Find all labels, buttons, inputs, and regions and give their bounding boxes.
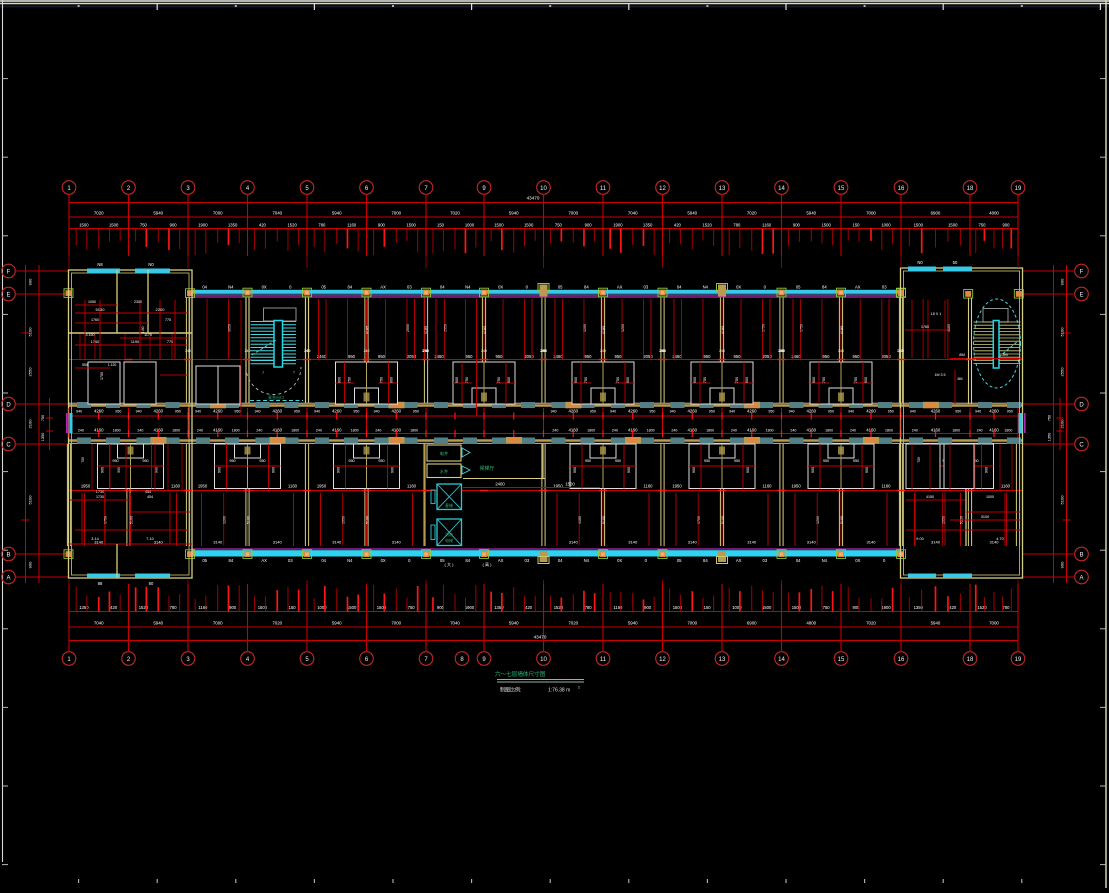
svg-text:5100: 5100	[721, 516, 725, 524]
svg-text:3140: 3140	[273, 540, 283, 545]
svg-text:2550: 2550	[28, 367, 33, 377]
svg-text:750: 750	[497, 377, 501, 383]
svg-text:940: 940	[910, 410, 916, 414]
svg-text:1800: 1800	[766, 429, 774, 433]
svg-text:750: 750	[854, 377, 858, 383]
svg-text:3050: 3050	[227, 324, 231, 332]
svg-text:940: 940	[551, 410, 557, 414]
svg-text:1.120: 1.120	[108, 363, 117, 367]
svg-text:15: 15	[838, 186, 845, 192]
svg-text:900: 900	[1003, 222, 1011, 227]
svg-text:900: 900	[390, 377, 394, 383]
svg-text:1800: 1800	[172, 429, 180, 433]
svg-text:3.150: 3.150	[86, 333, 95, 337]
svg-text:1500: 1500	[524, 222, 534, 227]
svg-text:1200: 1200	[223, 516, 227, 524]
svg-text:5100: 5100	[1060, 327, 1065, 337]
svg-text:900: 900	[985, 467, 989, 473]
svg-text:AX: AX	[261, 558, 267, 563]
svg-text:780: 780	[170, 605, 178, 610]
svg-text:940: 940	[670, 410, 676, 414]
svg-text:7020: 7020	[568, 621, 578, 626]
svg-text:240: 240	[245, 349, 251, 353]
svg-text:7040: 7040	[450, 621, 460, 626]
svg-text:5100: 5100	[28, 327, 33, 337]
svg-text:900: 900	[28, 278, 33, 285]
svg-text:D: D	[1079, 402, 1084, 408]
svg-text:1160: 1160	[762, 484, 772, 489]
svg-text:3140: 3140	[931, 540, 941, 545]
svg-text:1800: 1800	[351, 429, 359, 433]
svg-text:240: 240	[912, 429, 918, 433]
svg-text:8M: 8M	[959, 352, 965, 357]
svg-text:1800: 1800	[952, 429, 960, 433]
svg-text:2550: 2550	[444, 324, 448, 332]
svg-text:电梯: 电梯	[445, 537, 453, 543]
svg-text:900: 900	[170, 222, 178, 227]
svg-text:900: 900	[812, 377, 816, 383]
svg-text:940: 940	[314, 410, 320, 414]
svg-text:950: 950	[294, 410, 300, 414]
svg-text:5940: 5940	[806, 210, 816, 215]
svg-text:950: 950	[175, 410, 181, 414]
svg-text:5100: 5100	[130, 516, 134, 524]
svg-text:950: 950	[378, 354, 386, 359]
svg-text:1750: 1750	[800, 324, 804, 332]
svg-text:7040: 7040	[628, 210, 638, 215]
svg-text:4185: 4185	[578, 516, 582, 524]
svg-text:5940: 5940	[332, 621, 342, 626]
svg-text:N4: N4	[465, 284, 471, 289]
svg-text:05: 05	[677, 558, 682, 563]
svg-text:2050: 2050	[643, 354, 653, 359]
svg-text:420: 420	[259, 222, 267, 227]
svg-text:1000: 1000	[465, 222, 475, 227]
svg-text:1800: 1800	[113, 429, 121, 433]
svg-text:11: 11	[600, 186, 607, 192]
svg-text:7020: 7020	[94, 210, 104, 215]
svg-text:750: 750	[584, 377, 588, 383]
svg-text:5100: 5100	[840, 516, 844, 524]
svg-text:1500: 1500	[565, 482, 575, 487]
svg-text:900: 900	[864, 377, 868, 383]
svg-text:18: 18	[967, 657, 974, 663]
svg-text:7020: 7020	[272, 621, 282, 626]
svg-text:1200: 1200	[583, 324, 587, 332]
svg-text:1730: 1730	[96, 495, 104, 499]
svg-text:2050: 2050	[881, 354, 891, 359]
svg-text:1160: 1160	[288, 484, 298, 489]
svg-text:1800: 1800	[232, 429, 240, 433]
svg-text:4150: 4150	[926, 495, 934, 499]
svg-text:900: 900	[793, 222, 801, 227]
svg-text:1160: 1160	[198, 605, 208, 610]
svg-text:950: 950	[585, 459, 591, 463]
svg-text:4185: 4185	[721, 326, 725, 334]
svg-text:05: 05	[321, 284, 326, 289]
svg-text:240: 240	[197, 429, 203, 433]
svg-text:84: 84	[822, 284, 827, 289]
svg-text:( 高 ): ( 高 )	[483, 561, 493, 567]
svg-text:940: 940	[610, 410, 616, 414]
svg-text:750: 750	[703, 377, 707, 383]
svg-text:950: 950	[768, 410, 774, 414]
svg-text:05: 05	[796, 284, 801, 289]
svg-text:12: 12	[659, 186, 666, 192]
svg-text:950: 950	[585, 354, 593, 359]
svg-text:1520: 1520	[702, 222, 712, 227]
svg-text:1350: 1350	[228, 222, 238, 227]
svg-text:950: 950	[853, 354, 861, 359]
svg-text:3.14: 3.14	[91, 537, 98, 541]
svg-text:7020: 7020	[747, 210, 757, 215]
svg-text:5100: 5100	[247, 516, 251, 524]
svg-text:1900: 1900	[198, 222, 208, 227]
svg-text:240: 240	[552, 429, 558, 433]
svg-text:4185: 4185	[840, 326, 844, 334]
svg-text:950: 950	[734, 354, 742, 359]
svg-text:2550: 2550	[342, 516, 346, 524]
svg-text:( 大 ): ( 大 )	[445, 561, 455, 567]
svg-text:5130: 5130	[96, 307, 106, 312]
svg-text:04: 04	[202, 284, 207, 289]
svg-text:900: 900	[378, 222, 386, 227]
svg-text:1950: 1950	[81, 484, 91, 489]
svg-text:1520: 1520	[977, 605, 987, 610]
svg-text:780: 780	[585, 605, 593, 610]
svg-text:03: 03	[407, 284, 412, 289]
svg-text:AX: AX	[855, 284, 861, 289]
svg-text:2200: 2200	[156, 307, 166, 312]
svg-text:04: 04	[321, 558, 326, 563]
svg-text:3100: 3100	[981, 515, 989, 519]
svg-text:1950: 1950	[317, 484, 327, 489]
svg-text:900: 900	[574, 377, 578, 383]
svg-text:3140: 3140	[332, 540, 342, 545]
svg-text:04: 04	[440, 284, 445, 289]
svg-text:1160: 1160	[643, 484, 653, 489]
svg-text:750: 750	[979, 222, 987, 227]
svg-text:780: 780	[1003, 605, 1011, 610]
svg-text:AX: AX	[617, 284, 623, 289]
svg-text:950: 950	[704, 459, 710, 463]
svg-text:0X: 0X	[498, 284, 503, 289]
svg-text:1050: 1050	[88, 300, 96, 304]
svg-text:750: 750	[408, 605, 416, 610]
svg-text:43470: 43470	[527, 196, 540, 201]
svg-text:0X: 0X	[617, 558, 622, 563]
svg-text:候梯厅: 候梯厅	[479, 465, 494, 472]
svg-text:1350: 1350	[1048, 433, 1052, 441]
svg-text:240: 240	[671, 429, 677, 433]
svg-text:13: 13	[719, 657, 726, 663]
svg-text:900: 900	[272, 467, 276, 473]
svg-text:240: 240	[731, 429, 737, 433]
svg-text:240: 240	[375, 429, 381, 433]
svg-text:6900: 6900	[931, 210, 941, 215]
svg-text:3140: 3140	[747, 540, 757, 545]
svg-text:240: 240	[541, 349, 547, 353]
svg-text:1500: 1500	[948, 222, 958, 227]
svg-text:N4: N4	[584, 558, 590, 563]
svg-text:950: 950	[615, 354, 623, 359]
svg-text:JM: JM	[1002, 352, 1007, 357]
svg-text:950: 950	[496, 354, 504, 359]
svg-text:03: 03	[882, 284, 887, 289]
svg-text:J: J	[262, 370, 264, 375]
svg-text:7000: 7000	[391, 210, 401, 215]
svg-text:43470: 43470	[534, 635, 547, 640]
svg-text:750: 750	[735, 377, 739, 383]
svg-text:1500: 1500	[109, 222, 119, 227]
svg-text:3140: 3140	[688, 540, 698, 545]
svg-text:950: 950	[590, 410, 596, 414]
svg-text:1200: 1200	[621, 324, 625, 332]
svg-text:11: 11	[600, 657, 607, 663]
svg-text:750: 750	[81, 457, 85, 463]
svg-text:F: F	[7, 269, 11, 275]
svg-text:2550: 2550	[406, 324, 410, 332]
svg-text:3140: 3140	[867, 540, 877, 545]
svg-text:900: 900	[455, 377, 459, 383]
svg-text:4185: 4185	[483, 326, 487, 334]
svg-text:1:76.38 m: 1:76.38 m	[548, 688, 570, 694]
svg-text:B: B	[1079, 552, 1083, 558]
svg-text:4.70: 4.70	[996, 537, 1003, 541]
svg-text:1350: 1350	[41, 433, 45, 441]
svg-text:5100: 5100	[366, 516, 370, 524]
svg-text:7040: 7040	[94, 621, 104, 626]
svg-text:电井: 电井	[440, 450, 448, 457]
svg-text:7000: 7000	[213, 621, 223, 626]
svg-text:1160: 1160	[881, 484, 891, 489]
svg-text:AX: AX	[736, 558, 742, 563]
svg-text:750: 750	[465, 377, 469, 383]
svg-text:900: 900	[692, 467, 696, 473]
svg-text:900: 900	[811, 467, 815, 473]
svg-text:750: 750	[822, 377, 826, 383]
svg-text:1500: 1500	[914, 222, 924, 227]
svg-text:950: 950	[828, 410, 834, 414]
svg-text:240: 240	[612, 429, 618, 433]
svg-text:12: 12	[659, 657, 666, 663]
svg-text:240: 240	[719, 349, 725, 353]
svg-text:15: 15	[838, 657, 845, 663]
svg-text:900: 900	[644, 605, 652, 610]
svg-text:7000: 7000	[687, 621, 697, 626]
svg-text:900: 900	[626, 377, 630, 383]
svg-text:2400: 2400	[495, 482, 505, 487]
svg-text:240: 240	[256, 429, 262, 433]
svg-text:750: 750	[380, 377, 384, 383]
svg-text:950: 950	[115, 410, 121, 414]
svg-text:18: 18	[967, 186, 974, 192]
svg-text:制图比例:: 制图比例:	[500, 687, 521, 694]
svg-text:900: 900	[746, 467, 750, 473]
svg-text:4800: 4800	[989, 210, 999, 215]
svg-text:50: 50	[953, 260, 958, 265]
svg-text:03: 03	[644, 284, 649, 289]
svg-text:900: 900	[338, 377, 342, 383]
svg-text:240: 240	[481, 349, 487, 353]
svg-text:1900: 1900	[881, 605, 891, 610]
svg-text:4800: 4800	[806, 621, 816, 626]
svg-text:750: 750	[917, 457, 921, 463]
svg-text:N0: N0	[148, 262, 154, 267]
svg-text:84: 84	[703, 558, 708, 563]
svg-text:750: 750	[616, 377, 620, 383]
svg-text:04: 04	[677, 284, 682, 289]
svg-text:1175: 1175	[144, 333, 152, 337]
svg-text:1950: 1950	[198, 484, 208, 489]
svg-text:1750: 1750	[104, 516, 108, 524]
svg-text:4185: 4185	[366, 326, 370, 334]
svg-text:1800: 1800	[825, 429, 833, 433]
svg-text:84: 84	[465, 558, 470, 563]
svg-text:950: 950	[413, 410, 419, 414]
svg-text:900: 900	[101, 467, 105, 473]
svg-text:7000: 7000	[391, 621, 401, 626]
svg-text:A: A	[1079, 575, 1083, 581]
svg-text:16: 16	[898, 186, 905, 192]
svg-text:750: 750	[555, 222, 563, 227]
svg-text:1160: 1160	[613, 605, 623, 610]
svg-text:1500: 1500	[673, 605, 683, 610]
svg-text:1M 3 5: 1M 3 5	[935, 373, 946, 377]
svg-text:19: 19	[1015, 657, 1022, 663]
svg-text:N4: N4	[822, 558, 828, 563]
svg-text:4185: 4185	[602, 326, 606, 334]
svg-text:900: 900	[573, 467, 577, 473]
svg-text:1500: 1500	[494, 222, 504, 227]
svg-text:80: 80	[149, 581, 154, 586]
svg-text:900: 900	[585, 222, 593, 227]
svg-text:5940: 5940	[687, 210, 697, 215]
svg-text:1000: 1000	[881, 222, 891, 227]
svg-text:240: 240	[423, 349, 429, 353]
svg-text:消防: 消防	[445, 531, 453, 537]
svg-text:780: 780	[733, 222, 741, 227]
svg-text:9.00: 9.00	[916, 537, 923, 541]
svg-text:900: 900	[28, 561, 33, 568]
svg-text:0X: 0X	[855, 558, 860, 563]
svg-text:16: 16	[898, 657, 905, 663]
svg-text:10: 10	[540, 186, 547, 192]
svg-text:7000: 7000	[213, 210, 223, 215]
svg-text:900: 900	[218, 467, 222, 473]
svg-text:240: 240	[316, 429, 322, 433]
svg-text:10: 10	[540, 657, 547, 663]
svg-text:04: 04	[558, 558, 563, 563]
svg-text:940: 940	[374, 410, 380, 414]
svg-text:紧急出口: 紧急出口	[268, 394, 284, 400]
svg-text:N8: N8	[97, 262, 103, 267]
svg-text:7000: 7000	[989, 621, 999, 626]
svg-text:420: 420	[674, 222, 682, 227]
svg-text:900: 900	[865, 467, 869, 473]
svg-text:5940: 5940	[509, 210, 519, 215]
svg-text:900: 900	[337, 467, 341, 473]
svg-text:940: 940	[729, 410, 735, 414]
svg-text:775: 775	[165, 318, 171, 322]
svg-text:05: 05	[558, 284, 563, 289]
svg-text:3140: 3140	[807, 540, 817, 545]
svg-text:4185: 4185	[947, 324, 951, 332]
svg-text:2050: 2050	[524, 354, 534, 359]
svg-text:7000: 7000	[866, 210, 876, 215]
svg-text:1800: 1800	[587, 429, 595, 433]
svg-text:1800: 1800	[410, 429, 418, 433]
svg-text:N0: N0	[917, 260, 923, 265]
svg-text:454: 454	[147, 495, 153, 499]
svg-text:5940: 5940	[332, 210, 342, 215]
svg-text:1800: 1800	[706, 429, 714, 433]
svg-text:750: 750	[41, 415, 45, 421]
svg-text:5940: 5940	[153, 621, 163, 626]
svg-text:950: 950	[259, 459, 265, 463]
svg-text:1160: 1160	[1001, 484, 1011, 489]
svg-text:1500: 1500	[258, 605, 268, 610]
svg-text:950: 950	[353, 410, 359, 414]
svg-text:950: 950	[709, 410, 715, 414]
svg-text:AX: AX	[380, 284, 386, 289]
svg-text:1800: 1800	[885, 429, 893, 433]
svg-text:240: 240	[137, 429, 143, 433]
svg-text:780: 780	[318, 222, 326, 227]
svg-text:950: 950	[615, 459, 621, 463]
svg-text:3140: 3140	[569, 540, 579, 545]
svg-text:8M: 8M	[958, 377, 963, 381]
svg-text:7020: 7020	[866, 621, 876, 626]
svg-text:1350: 1350	[79, 605, 89, 610]
svg-text:1750: 1750	[100, 372, 104, 380]
svg-text:1500: 1500	[347, 605, 357, 610]
svg-text:240: 240	[660, 349, 666, 353]
svg-text:950: 950	[112, 459, 118, 463]
svg-text:150: 150	[289, 605, 297, 610]
svg-text:150: 150	[853, 222, 861, 227]
svg-text:1500: 1500	[821, 222, 831, 227]
svg-text:950: 950	[466, 354, 474, 359]
svg-text:E: E	[1079, 292, 1083, 298]
svg-text:2100: 2100	[1060, 419, 1065, 429]
svg-text:950: 950	[704, 354, 712, 359]
svg-text:950: 950	[649, 410, 655, 414]
svg-text:900: 900	[229, 605, 237, 610]
svg-text:240: 240	[838, 349, 844, 353]
svg-text:N4: N4	[347, 558, 353, 563]
svg-text:1190: 1190	[131, 340, 139, 344]
svg-text:1520: 1520	[287, 222, 297, 227]
svg-text:2550: 2550	[1060, 367, 1065, 377]
svg-text:AX: AX	[498, 558, 504, 563]
svg-text:900: 900	[745, 377, 749, 383]
svg-text:750: 750	[348, 377, 352, 383]
svg-text:2050: 2050	[762, 354, 772, 359]
svg-text:1800: 1800	[647, 429, 655, 433]
svg-text:950: 950	[348, 354, 356, 359]
svg-text:1160: 1160	[762, 222, 772, 227]
svg-text:2: 2	[578, 686, 580, 690]
svg-text:2050: 2050	[407, 354, 417, 359]
svg-text:84: 84	[584, 284, 589, 289]
svg-text:5100: 5100	[1060, 495, 1065, 505]
svg-text:1200: 1200	[816, 516, 820, 524]
svg-text:420: 420	[525, 605, 533, 610]
svg-text:240: 240	[78, 429, 84, 433]
svg-text:03: 03	[525, 558, 530, 563]
svg-text:7020: 7020	[450, 210, 460, 215]
